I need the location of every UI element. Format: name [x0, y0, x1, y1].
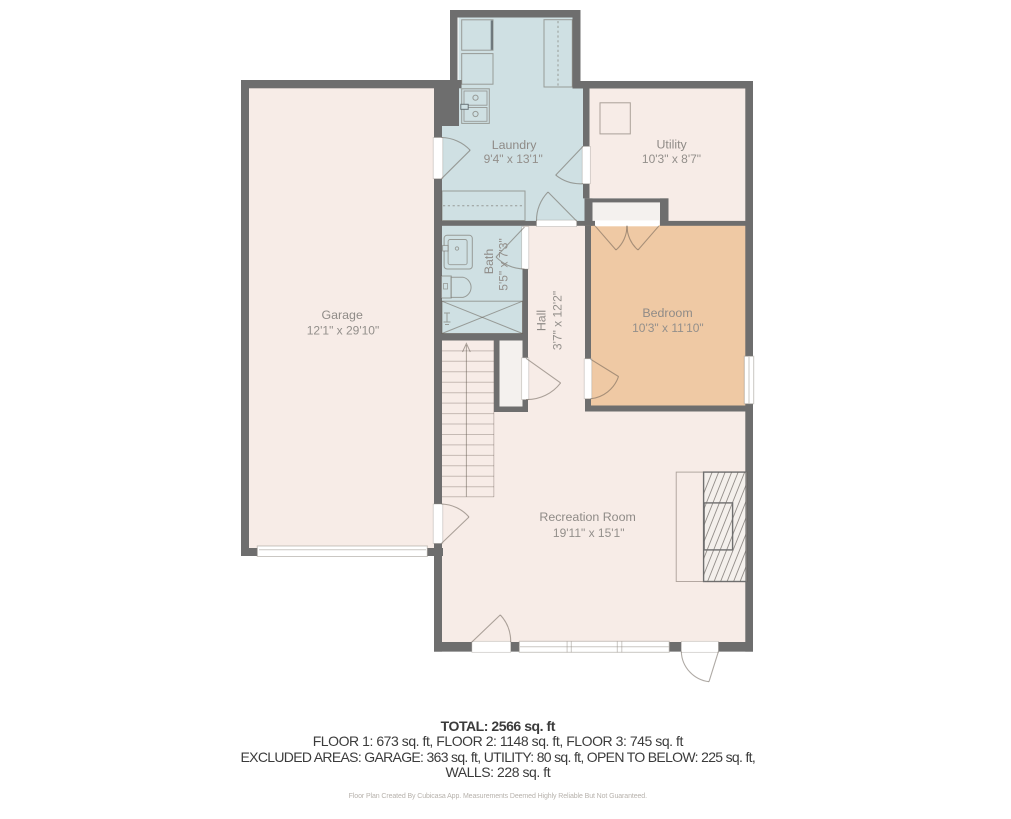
svg-text:Laundry: Laundry	[492, 138, 538, 152]
svg-text:Garage: Garage	[322, 308, 363, 322]
svg-text:10'3" x 11'10": 10'3" x 11'10"	[632, 321, 704, 335]
svg-text:19'11" x 15'1": 19'11" x 15'1"	[553, 526, 625, 540]
svg-text:Recreation Room: Recreation Room	[539, 510, 635, 524]
svg-text:Utility: Utility	[656, 138, 687, 152]
svg-text:9'4" x 13'1": 9'4" x 13'1"	[484, 152, 543, 166]
svg-text:10'3" x 8'7": 10'3" x 8'7"	[642, 152, 701, 166]
svg-text:Hall: Hall	[535, 310, 549, 331]
svg-text:3'7" x 12'2": 3'7" x 12'2"	[551, 291, 565, 350]
svg-text:Bedroom: Bedroom	[642, 306, 692, 320]
svg-text:12'1" x 29'10": 12'1" x 29'10"	[307, 324, 380, 338]
svg-text:5'5" x 7'3": 5'5" x 7'3"	[497, 238, 511, 290]
svg-text:Bath: Bath	[482, 249, 496, 275]
